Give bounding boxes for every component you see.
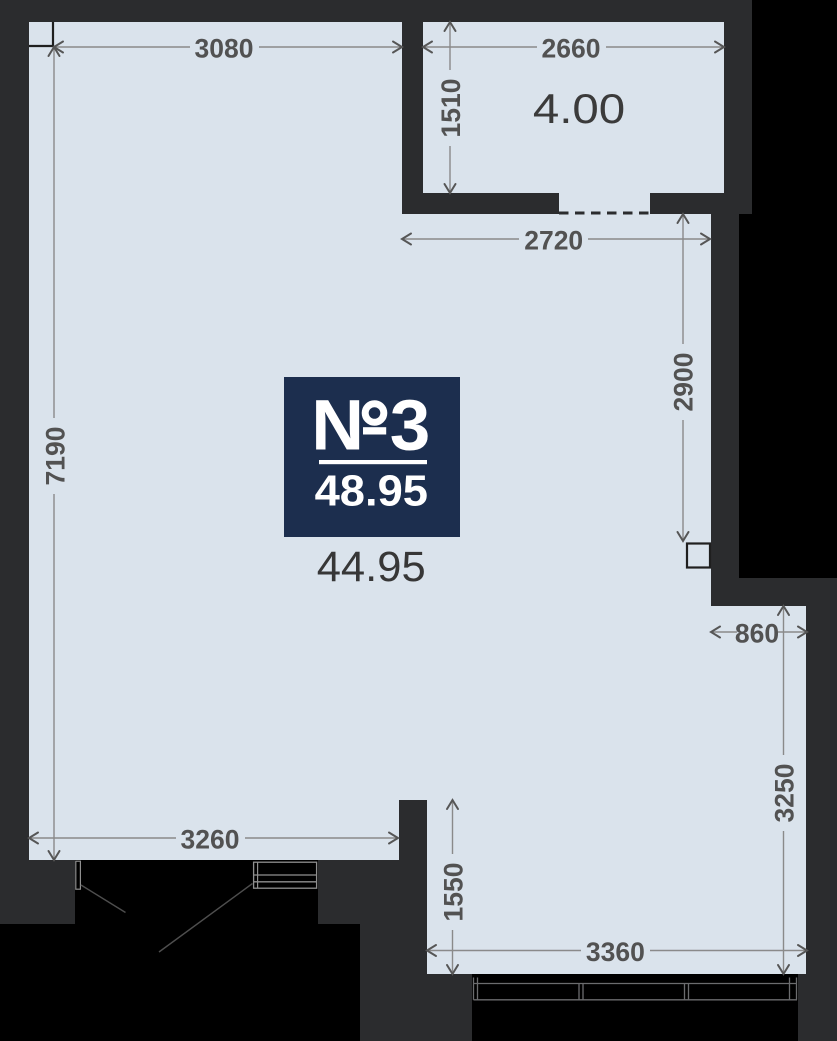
svg-text:1550: 1550 [439, 863, 469, 922]
svg-text:3360: 3360 [586, 937, 645, 967]
svg-text:1510: 1510 [436, 79, 466, 138]
svg-text:3: 3 [390, 386, 431, 465]
svg-text:3250: 3250 [770, 764, 800, 823]
svg-text:44.95: 44.95 [317, 543, 426, 590]
svg-text:3080: 3080 [195, 34, 254, 64]
svg-text:2900: 2900 [669, 353, 699, 412]
svg-text:3260: 3260 [181, 825, 240, 855]
svg-text:7190: 7190 [40, 427, 70, 486]
svg-text:2720: 2720 [524, 226, 583, 256]
svg-text:48.95: 48.95 [315, 467, 428, 515]
svg-text:4.00: 4.00 [533, 86, 625, 133]
svg-text:860: 860 [735, 619, 779, 649]
svg-text:N: N [311, 386, 364, 465]
svg-text:2660: 2660 [542, 34, 601, 64]
